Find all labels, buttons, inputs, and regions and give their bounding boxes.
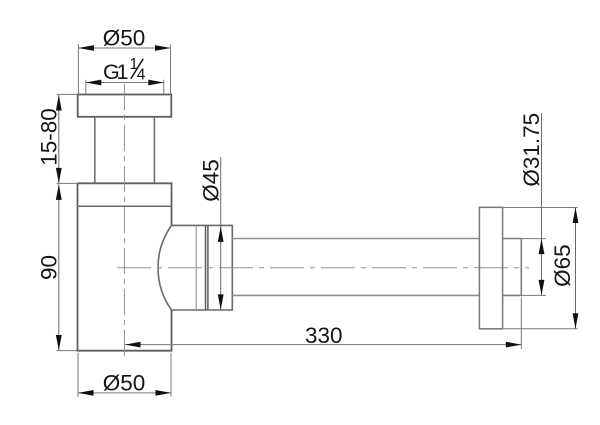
svg-text:Ø65: Ø65 <box>550 244 575 287</box>
svg-text:330: 330 <box>305 323 343 348</box>
svg-text:15-80: 15-80 <box>36 108 61 166</box>
svg-text:90: 90 <box>36 255 61 280</box>
svg-text:Ø50: Ø50 <box>103 371 146 396</box>
svg-text:Ø50: Ø50 <box>103 26 146 51</box>
svg-text:1: 1 <box>117 60 129 84</box>
svg-text:4: 4 <box>137 67 146 84</box>
svg-text:Ø45: Ø45 <box>199 159 224 202</box>
svg-text:Ø31.75: Ø31.75 <box>519 113 544 187</box>
